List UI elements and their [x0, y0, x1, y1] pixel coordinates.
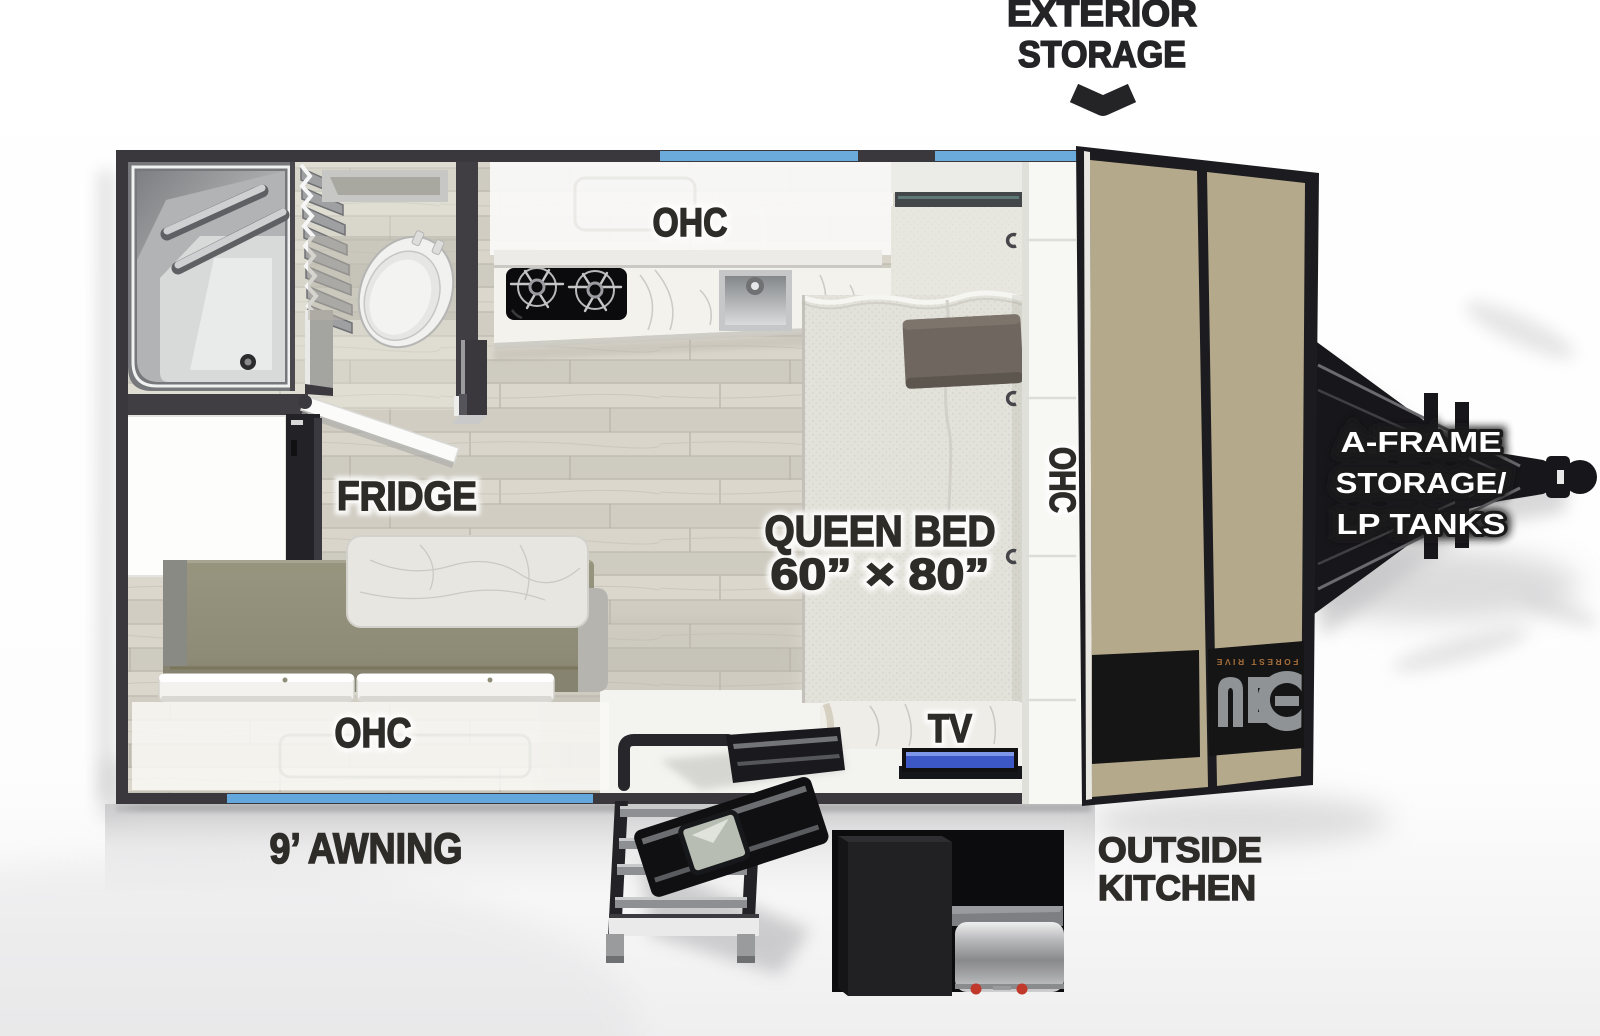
svg-text:QUEEN BED: QUEEN BED — [765, 507, 996, 556]
svg-text:LP TANKS: LP TANKS — [1337, 509, 1506, 541]
svg-text:OHC: OHC — [653, 201, 728, 245]
svg-text:TV: TV — [928, 707, 972, 751]
svg-text:OHC: OHC — [335, 709, 412, 756]
svg-text:9’ AWNING: 9’ AWNING — [270, 825, 463, 873]
svg-text:FRIDGE: FRIDGE — [337, 473, 477, 519]
svg-text:STORAGE: STORAGE — [1018, 34, 1186, 75]
svg-text:FOREST RIVER: FOREST RIVER — [1206, 657, 1299, 667]
svg-text:OHC: OHC — [1042, 447, 1083, 513]
svg-text:60” × 80”: 60” × 80” — [771, 550, 990, 599]
svg-text:KITCHEN: KITCHEN — [1098, 869, 1256, 908]
svg-text:OUTSIDE: OUTSIDE — [1098, 831, 1262, 870]
svg-text:STORAGE/: STORAGE/ — [1336, 468, 1507, 500]
svg-text:EXTERIOR: EXTERIOR — [1007, 0, 1197, 34]
svg-text:A-FRAME: A-FRAME — [1341, 427, 1502, 459]
